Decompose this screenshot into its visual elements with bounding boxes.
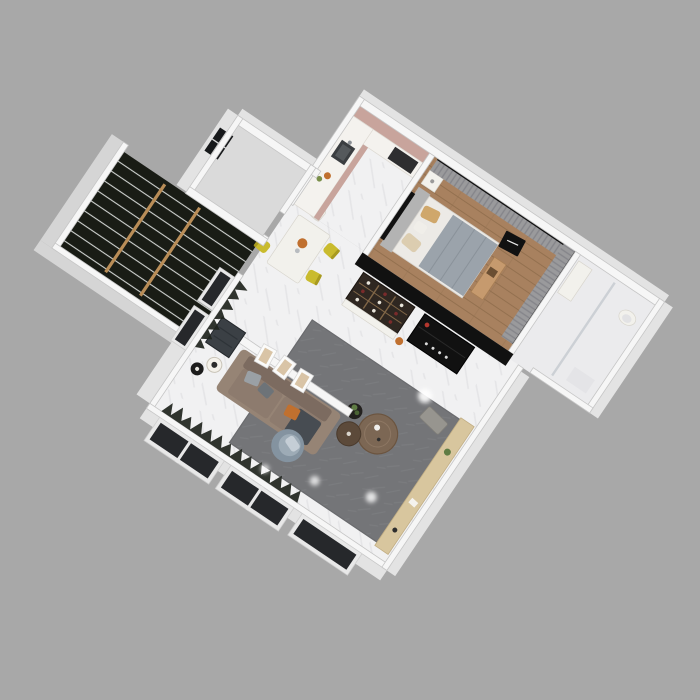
render-canvas [0,0,700,700]
floorplan-3d-render [0,0,700,700]
